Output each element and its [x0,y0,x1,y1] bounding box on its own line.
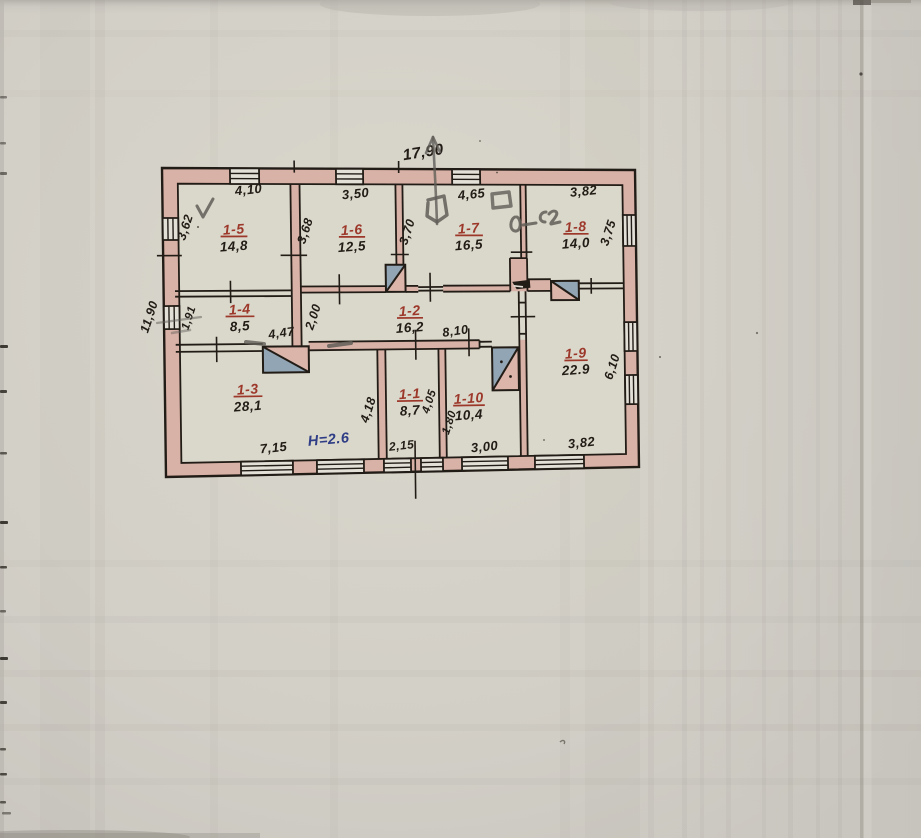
svg-text:8,5: 8,5 [229,318,250,334]
svg-text:4,10: 4,10 [233,181,263,199]
svg-text:1-2: 1-2 [398,302,421,319]
svg-text:3,82: 3,82 [567,434,596,452]
svg-text:1-8: 1-8 [564,218,587,235]
svg-text:12,5: 12,5 [337,238,366,255]
svg-text:3,50: 3,50 [341,185,370,203]
svg-text:1-3: 1-3 [236,380,259,397]
svg-text:1-10: 1-10 [453,389,484,407]
svg-text:3,00: 3,00 [470,438,499,456]
svg-text:28,1: 28,1 [232,398,262,415]
svg-text:16,5: 16,5 [454,236,483,253]
svg-text:2,15: 2,15 [387,437,415,454]
svg-text:14,0: 14,0 [561,235,590,252]
svg-text:3,82: 3,82 [569,182,598,200]
svg-text:1-9: 1-9 [564,344,587,361]
svg-text:1-6: 1-6 [340,221,363,238]
svg-text:1-5: 1-5 [222,220,245,237]
svg-text:1-4: 1-4 [228,300,251,317]
svg-text:10,4: 10,4 [454,406,483,423]
svg-text:22.9: 22.9 [560,361,590,378]
svg-text:16,2: 16,2 [395,319,424,336]
svg-text:1-1: 1-1 [398,385,421,402]
svg-text:14,8: 14,8 [219,238,248,255]
svg-text:8,7: 8,7 [399,402,421,418]
svg-text:4,65: 4,65 [456,185,486,203]
svg-text:7,15: 7,15 [259,439,288,457]
svg-text:1-7: 1-7 [457,219,481,237]
